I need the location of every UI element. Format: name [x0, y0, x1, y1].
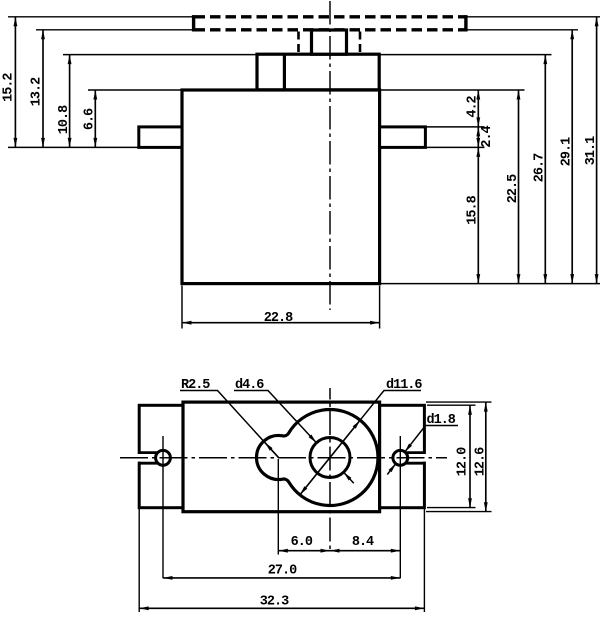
svg-text:13.2: 13.2: [30, 77, 45, 106]
svg-text:4.2: 4.2: [466, 95, 481, 117]
svg-text:22.8: 22.8: [264, 311, 293, 326]
svg-text:6.0: 6.0: [291, 535, 313, 550]
svg-text:2.4: 2.4: [480, 125, 495, 147]
svg-text:15.2: 15.2: [2, 73, 17, 102]
svg-text:31.1: 31.1: [584, 136, 599, 165]
svg-text:12.0: 12.0: [456, 447, 471, 476]
svg-text:12.6: 12.6: [473, 447, 488, 476]
svg-text:26.7: 26.7: [533, 153, 548, 182]
svg-text:29.1: 29.1: [560, 137, 575, 166]
svg-text:15.8: 15.8: [466, 195, 481, 224]
svg-text:27.0: 27.0: [268, 563, 297, 578]
svg-text:8.4: 8.4: [352, 535, 374, 550]
svg-text:10.8: 10.8: [57, 105, 72, 134]
svg-text:6.6: 6.6: [83, 108, 98, 130]
svg-text:32.3: 32.3: [260, 595, 289, 610]
svg-text:22.5: 22.5: [506, 174, 521, 203]
